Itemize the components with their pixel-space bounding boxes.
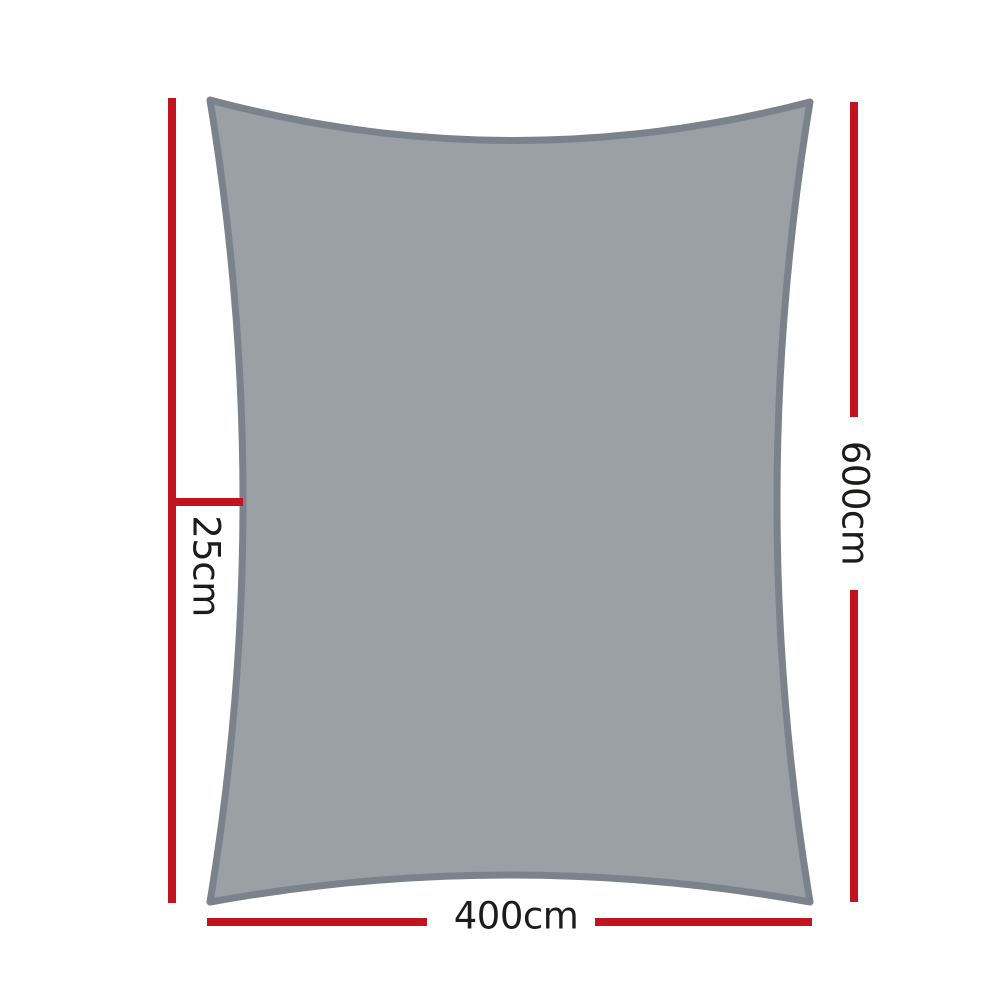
- left-offset-tick-line: [168, 498, 243, 506]
- height-dimension-label: 600cm: [837, 441, 874, 566]
- width-dimension-label: 400cm: [454, 898, 579, 935]
- bottom-dimension-line-right: [595, 918, 812, 926]
- right-dimension-line-lower: [850, 590, 858, 902]
- sail-outline: [210, 100, 810, 902]
- left-offset-dimension-label: 25cm: [188, 515, 225, 616]
- bottom-dimension-line-left: [207, 918, 427, 926]
- shade-sail-dimension-diagram: 25cm 600cm 400cm: [0, 0, 1000, 1000]
- right-dimension-line-upper: [850, 102, 858, 417]
